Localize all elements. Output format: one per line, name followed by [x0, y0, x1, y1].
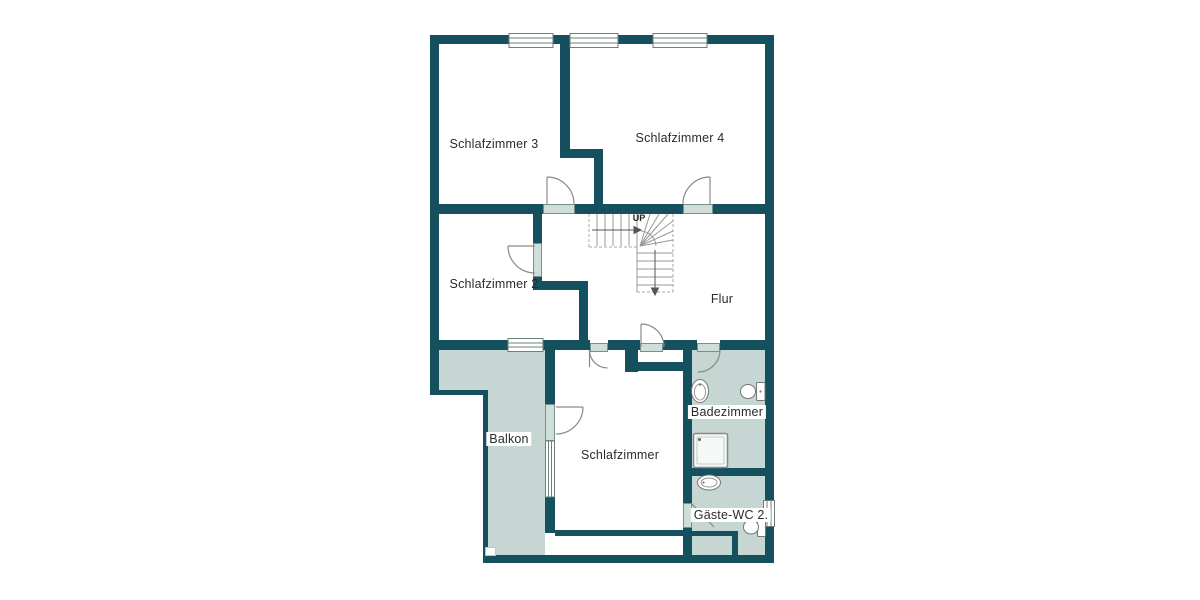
wall-top	[430, 35, 774, 44]
wall-mid-b5	[720, 340, 765, 350]
balkon-area-lower	[488, 390, 545, 555]
wall-bottom	[483, 555, 774, 563]
room-label-schlafzimmer2: Schlafzimmer 2	[450, 277, 539, 291]
room-label-badezimmer: Badezimmer	[688, 405, 766, 419]
door-schlafzimmer2	[533, 243, 542, 277]
door-schlafzimmer3	[543, 204, 575, 214]
door-flur	[640, 343, 663, 352]
wall-mid-a3	[713, 204, 765, 214]
door-arc	[683, 177, 710, 204]
door-badezimmer	[697, 343, 720, 352]
wall-bad-b	[683, 528, 692, 557]
room-label-flur: Flur	[711, 292, 733, 306]
room-label-schlafzimmer3: Schlafzimmer 3	[450, 137, 539, 151]
door-arc	[556, 407, 583, 434]
wall-mid-a2	[575, 204, 683, 214]
wall-sz-bottom	[555, 530, 683, 536]
room-label-balkon: Balkon	[486, 432, 531, 446]
stairs-up-label: UP	[633, 213, 646, 223]
stair-direction-arrow	[592, 227, 659, 296]
wall-mid-a1	[430, 204, 543, 214]
wall-sz34-lower	[594, 149, 603, 214]
room-label-gaeste-wc: Gäste-WC 2.	[691, 508, 771, 522]
door-schlafzimmer	[590, 343, 608, 352]
wall-bad-wc-divider	[692, 468, 765, 476]
wall-balkon-left	[483, 390, 488, 555]
wall-duct-top	[692, 531, 732, 536]
wall-balkon-b	[545, 497, 555, 533]
wall-mid-b1	[430, 340, 508, 350]
door-arc	[547, 177, 574, 204]
wall-duct-right	[732, 531, 738, 557]
door-schlafzimmer4	[683, 204, 713, 214]
wall-balkon-a	[545, 340, 555, 404]
wall-sz2-lower	[579, 281, 588, 340]
plan-symbols	[0, 0, 1200, 600]
balkon-post	[485, 547, 496, 556]
door-arc	[590, 350, 608, 368]
room-label-schlafzimmer: Schlafzimmer	[581, 448, 659, 462]
staircase	[589, 214, 673, 295]
duct-box-area	[692, 536, 732, 555]
door-arc	[508, 246, 535, 273]
wall-nook-h	[625, 362, 687, 371]
wall-sz2-a	[533, 204, 542, 243]
window	[546, 441, 555, 497]
door-balkon	[545, 404, 555, 441]
room-label-schlafzimmer4: Schlafzimmer 4	[636, 131, 725, 145]
floor-plan: Schlafzimmer 3 Schlafzimmer 4 Schlafzimm…	[0, 0, 1200, 600]
balkon-area	[439, 350, 545, 392]
wall-right	[765, 35, 774, 563]
wall-sz34-vertical	[560, 44, 570, 154]
wall-balkon-step	[430, 390, 488, 395]
